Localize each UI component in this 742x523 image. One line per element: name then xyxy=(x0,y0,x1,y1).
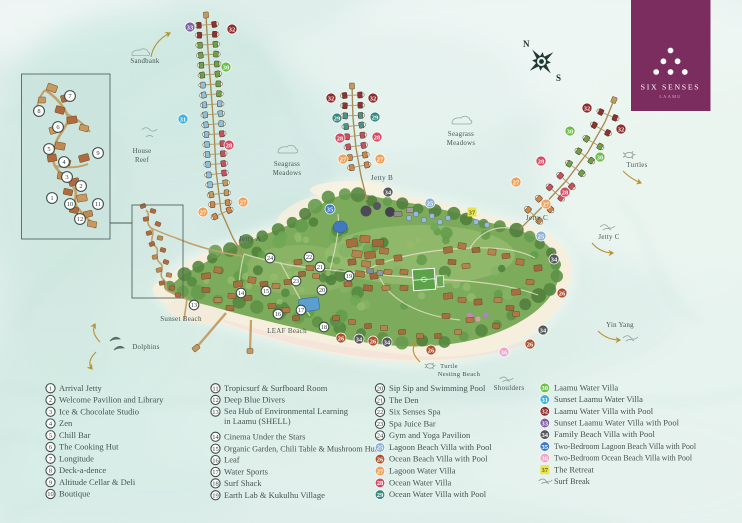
svg-text:32: 32 xyxy=(370,95,376,102)
svg-text:30: 30 xyxy=(597,154,603,161)
svg-text:Chill Bar: Chill Bar xyxy=(59,430,91,440)
svg-text:Sandbank: Sandbank xyxy=(130,58,160,65)
svg-text:9: 9 xyxy=(96,150,99,157)
svg-text:Yin Yang: Yin Yang xyxy=(606,322,634,329)
svg-text:Zen: Zen xyxy=(59,418,73,428)
svg-text:33: 33 xyxy=(542,420,549,427)
svg-text:27: 27 xyxy=(200,209,207,216)
svg-text:Two-Bedroom Lagoon Beach Villa: Two-Bedroom Lagoon Beach Villa with Pool xyxy=(554,441,697,451)
svg-text:Ice & Chocolate Studio: Ice & Chocolate Studio xyxy=(59,406,139,416)
svg-text:29: 29 xyxy=(372,114,378,121)
svg-text:S: S xyxy=(556,73,561,83)
svg-text:33: 33 xyxy=(187,24,193,31)
svg-text:34: 34 xyxy=(542,432,549,439)
svg-text:Surf Break: Surf Break xyxy=(554,477,591,486)
svg-text:31: 31 xyxy=(180,116,186,123)
svg-text:36: 36 xyxy=(542,455,549,462)
svg-text:26: 26 xyxy=(338,335,345,342)
svg-text:3: 3 xyxy=(65,174,68,181)
svg-text:Turtles: Turtles xyxy=(626,162,647,169)
svg-text:SIX SENSES: SIX SENSES xyxy=(641,83,701,92)
svg-text:34: 34 xyxy=(356,336,363,343)
svg-text:19: 19 xyxy=(346,273,352,280)
svg-text:Reef: Reef xyxy=(135,157,149,164)
svg-text:11: 11 xyxy=(95,201,101,208)
svg-text:Jetty B: Jetty B xyxy=(371,174,393,182)
svg-text:Longitude: Longitude xyxy=(59,453,94,463)
svg-text:32: 32 xyxy=(618,126,624,133)
svg-text:27: 27 xyxy=(240,199,247,206)
svg-text:23: 23 xyxy=(293,278,299,285)
svg-text:37: 37 xyxy=(542,467,549,474)
svg-text:10: 10 xyxy=(67,201,74,208)
svg-text:5: 5 xyxy=(49,432,52,439)
svg-text:27: 27 xyxy=(513,179,520,186)
svg-text:Welcome Pavilion and Library: Welcome Pavilion and Library xyxy=(59,395,164,405)
svg-text:Jetty A: Jetty A xyxy=(239,235,262,243)
svg-text:8: 8 xyxy=(37,108,40,115)
svg-text:Family Beach Villa with Pool: Family Beach Villa with Pool xyxy=(554,429,655,439)
svg-text:Deck-a-dence: Deck-a-dence xyxy=(59,465,106,475)
svg-text:5: 5 xyxy=(47,146,50,153)
svg-text:13: 13 xyxy=(191,302,197,309)
svg-text:2: 2 xyxy=(49,397,52,404)
svg-text:26: 26 xyxy=(559,290,566,297)
svg-text:in Laamu (SHELL): in Laamu (SHELL) xyxy=(224,416,291,426)
svg-text:28: 28 xyxy=(377,480,384,487)
svg-text:8: 8 xyxy=(49,468,52,475)
svg-text:LAAMU: LAAMU xyxy=(659,94,681,99)
svg-text:13: 13 xyxy=(212,409,219,416)
svg-text:28: 28 xyxy=(374,134,380,141)
svg-text:The Den: The Den xyxy=(389,395,419,405)
svg-text:Meadows: Meadows xyxy=(273,170,302,177)
svg-text:27: 27 xyxy=(377,156,384,163)
svg-text:22: 22 xyxy=(306,254,312,261)
svg-text:Laamu Water Villa with Pool: Laamu Water Villa with Pool xyxy=(554,406,654,416)
svg-text:Jetty C: Jetty C xyxy=(598,234,619,241)
svg-text:Leaf: Leaf xyxy=(224,455,240,465)
svg-text:Sip Sip and Swimming Pool: Sip Sip and Swimming Pool xyxy=(389,383,486,393)
svg-text:34: 34 xyxy=(384,339,391,346)
svg-text:Lagoon Water Villa: Lagoon Water Villa xyxy=(389,466,456,476)
svg-text:Turtle: Turtle xyxy=(440,363,458,370)
svg-text:26: 26 xyxy=(377,456,384,463)
svg-text:34: 34 xyxy=(540,327,547,334)
svg-text:Altitude Cellar & Deli: Altitude Cellar & Deli xyxy=(59,477,136,487)
svg-text:Arrival Jetty: Arrival Jetty xyxy=(59,383,102,393)
svg-text:The Retreat: The Retreat xyxy=(554,464,595,474)
svg-text:Cinema Under the Stars: Cinema Under the Stars xyxy=(224,431,305,441)
svg-text:31: 31 xyxy=(542,397,549,404)
svg-text:17: 17 xyxy=(298,307,304,314)
svg-text:19: 19 xyxy=(212,493,219,500)
svg-text:12: 12 xyxy=(77,216,84,223)
svg-text:36: 36 xyxy=(501,349,508,356)
svg-text:LEAF Beach: LEAF Beach xyxy=(267,327,307,335)
svg-text:22: 22 xyxy=(377,409,384,416)
svg-text:25: 25 xyxy=(427,200,433,207)
svg-text:29: 29 xyxy=(334,115,340,122)
svg-text:11: 11 xyxy=(212,386,218,393)
svg-text:Sunset Laamu Water Villa: Sunset Laamu Water Villa xyxy=(554,394,643,404)
svg-text:9: 9 xyxy=(49,479,52,486)
svg-text:The Cooking Hut: The Cooking Hut xyxy=(59,442,119,452)
svg-text:20: 20 xyxy=(377,386,384,393)
svg-text:Water Sports: Water Sports xyxy=(224,467,268,477)
svg-text:2: 2 xyxy=(79,183,82,190)
svg-text:28: 28 xyxy=(226,142,232,149)
svg-text:15: 15 xyxy=(263,288,269,295)
svg-text:House: House xyxy=(133,148,152,155)
svg-text:Laamu Water Villa: Laamu Water Villa xyxy=(554,382,618,392)
svg-text:Two-Bedroom Ocean Beach Villa: Two-Bedroom Ocean Beach Villa with Pool xyxy=(554,453,693,463)
svg-text:30: 30 xyxy=(542,385,549,392)
svg-text:26: 26 xyxy=(527,341,534,348)
svg-text:32: 32 xyxy=(542,409,549,416)
svg-text:32: 32 xyxy=(229,26,235,33)
svg-text:15: 15 xyxy=(212,446,219,453)
svg-text:17: 17 xyxy=(212,469,219,476)
svg-text:25: 25 xyxy=(538,233,544,240)
svg-text:Earth Lab & Kukulhu Village: Earth Lab & Kukulhu Village xyxy=(224,490,325,500)
svg-text:30: 30 xyxy=(567,128,573,135)
svg-text:Ocean Water Villa with Pool: Ocean Water Villa with Pool xyxy=(389,489,487,499)
svg-text:Boutique: Boutique xyxy=(59,489,90,499)
svg-text:Spa Juice Bar: Spa Juice Bar xyxy=(389,418,436,428)
svg-text:34: 34 xyxy=(551,256,558,263)
svg-text:3: 3 xyxy=(49,409,52,416)
svg-text:27: 27 xyxy=(340,156,347,163)
svg-text:N: N xyxy=(523,39,530,49)
svg-text:37: 37 xyxy=(469,209,476,216)
svg-text:35: 35 xyxy=(542,444,549,451)
svg-text:34: 34 xyxy=(385,189,392,196)
svg-text:26: 26 xyxy=(370,338,377,345)
svg-text:Seagrass: Seagrass xyxy=(274,161,300,168)
svg-text:Dolphins: Dolphins xyxy=(132,344,159,351)
svg-text:25: 25 xyxy=(377,445,384,452)
svg-text:28: 28 xyxy=(562,189,568,196)
svg-text:27: 27 xyxy=(377,468,384,475)
svg-text:Shoulders: Shoulders xyxy=(494,384,525,392)
svg-text:30: 30 xyxy=(223,64,229,71)
svg-text:Six Senses Spa: Six Senses Spa xyxy=(389,407,441,417)
svg-text:1: 1 xyxy=(50,195,53,202)
svg-text:26: 26 xyxy=(428,347,435,354)
svg-text:Sea Hub of Environmental Learn: Sea Hub of Environmental Learning xyxy=(224,406,349,416)
svg-text:16: 16 xyxy=(275,311,281,318)
svg-text:Tropicsurf & Surfboard Room: Tropicsurf & Surfboard Room xyxy=(224,383,328,393)
svg-text:21: 21 xyxy=(317,264,323,271)
svg-text:27: 27 xyxy=(543,201,550,208)
svg-text:23: 23 xyxy=(377,421,384,428)
svg-text:32: 32 xyxy=(328,95,334,102)
svg-text:35: 35 xyxy=(327,206,333,213)
svg-text:20: 20 xyxy=(319,287,325,294)
svg-text:Meadows: Meadows xyxy=(447,140,476,147)
svg-text:18: 18 xyxy=(212,481,219,488)
svg-text:Jetty C: Jetty C xyxy=(526,214,548,222)
svg-text:18: 18 xyxy=(321,324,327,331)
svg-text:Deep Blue Divers: Deep Blue Divers xyxy=(224,395,285,405)
svg-text:28: 28 xyxy=(337,135,343,142)
svg-text:1: 1 xyxy=(49,385,52,392)
svg-text:Ocean Beach Villa with Pool: Ocean Beach Villa with Pool xyxy=(389,454,488,464)
svg-text:32: 32 xyxy=(584,105,590,112)
svg-text:24: 24 xyxy=(267,255,274,262)
svg-text:Seagrass: Seagrass xyxy=(448,131,474,138)
svg-text:Nesting Beach: Nesting Beach xyxy=(438,371,481,378)
svg-text:Lagoon Beach Villa with Pool: Lagoon Beach Villa with Pool xyxy=(389,442,492,452)
svg-text:Ocean Water Villa: Ocean Water Villa xyxy=(389,478,451,488)
svg-text:Gym and Yoga Pavilion: Gym and Yoga Pavilion xyxy=(389,430,471,440)
svg-text:16: 16 xyxy=(212,457,219,464)
svg-text:14: 14 xyxy=(238,290,245,297)
svg-text:Surf Shack: Surf Shack xyxy=(224,478,262,488)
svg-text:28: 28 xyxy=(538,158,544,165)
svg-text:10: 10 xyxy=(47,491,54,498)
svg-text:Sunset Laamu Water Villa with: Sunset Laamu Water Villa with Pool xyxy=(554,418,680,428)
svg-text:29: 29 xyxy=(377,492,384,499)
svg-text:24: 24 xyxy=(377,433,384,440)
svg-text:Organic Garden, Chili Table &: Organic Garden, Chili Table & Mushroom H… xyxy=(224,443,378,453)
svg-text:21: 21 xyxy=(377,397,384,404)
svg-text:14: 14 xyxy=(212,434,219,441)
svg-text:12: 12 xyxy=(212,397,219,404)
svg-text:Sunset Beach: Sunset Beach xyxy=(160,315,202,323)
